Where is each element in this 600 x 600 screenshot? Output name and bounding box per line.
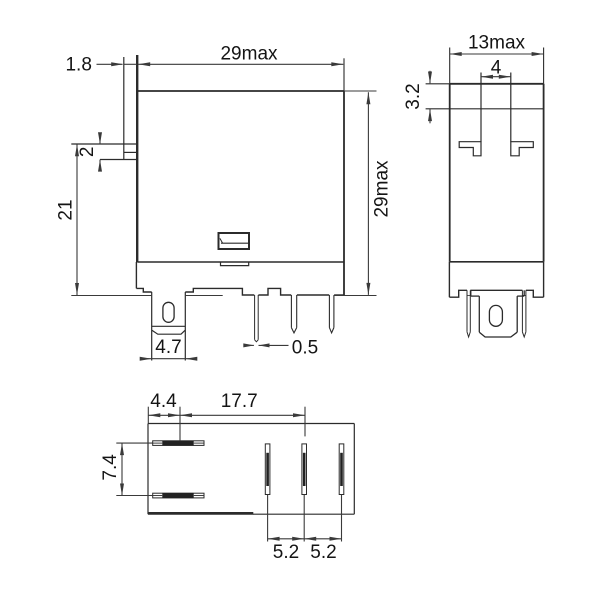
- svg-text:29max: 29max: [372, 160, 393, 218]
- svg-text:3.2: 3.2: [403, 83, 424, 109]
- svg-text:2: 2: [77, 147, 98, 158]
- svg-text:4.7: 4.7: [155, 337, 181, 358]
- svg-text:1.8: 1.8: [65, 54, 91, 75]
- svg-text:29max: 29max: [220, 44, 278, 65]
- svg-text:4.4: 4.4: [150, 391, 177, 412]
- svg-text:0.5: 0.5: [292, 338, 318, 359]
- svg-text:5.2: 5.2: [273, 542, 299, 563]
- svg-text:4: 4: [491, 58, 502, 79]
- svg-text:21: 21: [56, 199, 77, 220]
- svg-text:13max: 13max: [468, 33, 526, 54]
- svg-text:5.2: 5.2: [310, 542, 336, 563]
- svg-text:17.7: 17.7: [221, 391, 258, 412]
- svg-text:7.4: 7.4: [100, 454, 121, 481]
